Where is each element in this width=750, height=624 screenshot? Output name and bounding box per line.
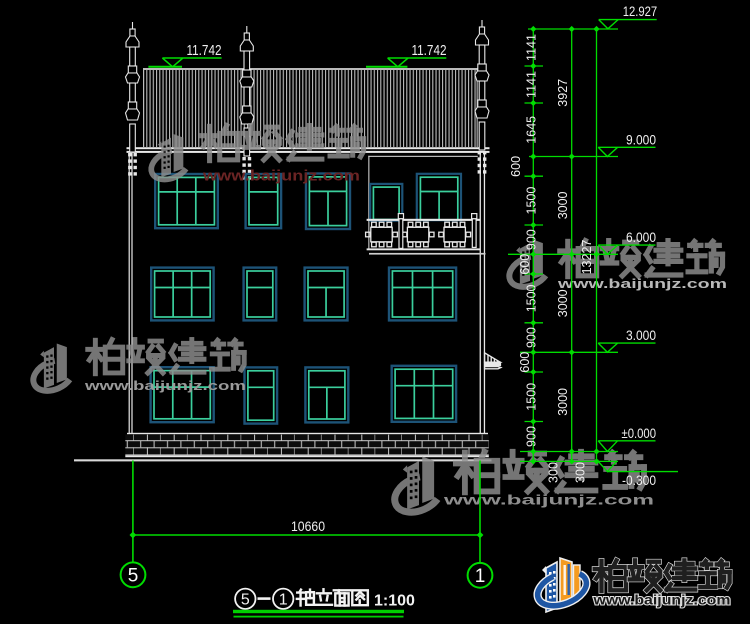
svg-text:1500: 1500 <box>524 284 538 312</box>
svg-text:3000: 3000 <box>556 388 570 416</box>
svg-text:1500: 1500 <box>524 187 538 215</box>
svg-text:-0.300: -0.300 <box>622 472 656 488</box>
svg-text:www.baijunjz.com: www.baijunjz.com <box>442 493 654 508</box>
svg-text:3.000: 3.000 <box>626 327 656 343</box>
svg-text:900: 900 <box>524 229 538 250</box>
svg-text:900: 900 <box>524 426 538 447</box>
svg-text:1: 1 <box>475 566 486 587</box>
svg-text:11.742: 11.742 <box>187 43 222 59</box>
svg-text:600: 600 <box>518 254 532 275</box>
svg-text:300: 300 <box>546 462 560 483</box>
svg-text:12.927: 12.927 <box>623 3 658 19</box>
svg-text:1500: 1500 <box>524 383 538 411</box>
svg-text:3000: 3000 <box>556 289 570 317</box>
svg-text:1141: 1141 <box>524 34 538 61</box>
svg-text:5: 5 <box>128 566 139 587</box>
svg-text:www.baijunjz.com: www.baijunjz.com <box>556 277 727 291</box>
svg-text:10660: 10660 <box>291 518 325 534</box>
svg-text:3000: 3000 <box>556 191 570 219</box>
svg-text:1: 1 <box>279 592 288 609</box>
svg-text:1141: 1141 <box>524 71 538 98</box>
svg-text:600: 600 <box>509 156 523 177</box>
svg-text:5: 5 <box>241 592 250 609</box>
svg-text:www.baijunjz.com: www.baijunjz.com <box>202 168 360 185</box>
svg-text:www.baijunjz.com: www.baijunjz.com <box>84 379 246 393</box>
svg-text:300: 300 <box>573 462 587 483</box>
svg-text:9.000: 9.000 <box>626 131 656 147</box>
svg-text:3927: 3927 <box>556 79 570 107</box>
svg-text:1:100: 1:100 <box>374 593 415 610</box>
svg-text:13227: 13227 <box>580 240 594 275</box>
svg-text:±0.000: ±0.000 <box>622 425 657 441</box>
svg-text:600: 600 <box>518 352 532 373</box>
svg-text:6.000: 6.000 <box>626 229 656 245</box>
svg-text:www.baijunjz.com: www.baijunjz.com <box>592 593 730 608</box>
svg-text:11.742: 11.742 <box>412 43 447 59</box>
svg-text:900: 900 <box>524 327 538 348</box>
svg-text:1645: 1645 <box>524 116 538 144</box>
